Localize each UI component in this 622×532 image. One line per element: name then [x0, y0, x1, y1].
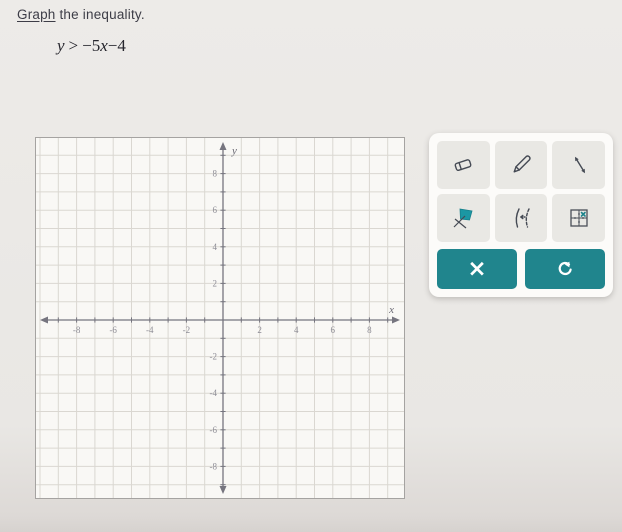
svg-text:4: 4: [213, 242, 218, 252]
eraser-icon: [451, 153, 475, 177]
graph-link[interactable]: Graph: [17, 7, 56, 22]
svg-text:4: 4: [294, 325, 299, 335]
pencil-icon: [509, 153, 533, 177]
line-segment-icon: [567, 153, 591, 177]
undo-icon: [553, 257, 577, 281]
svg-text:x: x: [388, 304, 394, 316]
svg-text:-2: -2: [210, 352, 218, 362]
svg-text:-2: -2: [183, 325, 191, 335]
dashed-boundary-icon: [509, 206, 533, 230]
equation-constant: −4: [108, 36, 126, 55]
svg-text:8: 8: [367, 325, 372, 335]
line-tool-button[interactable]: [552, 141, 605, 189]
graph-grid-svg[interactable]: -8-6-4-22468-8-6-4-22468xy: [36, 138, 404, 498]
tool-grid: [437, 141, 605, 242]
equation-lhs: y: [57, 36, 65, 55]
undo-button[interactable]: [525, 249, 605, 289]
equation-coefficient: −5: [82, 36, 100, 55]
svg-text:-4: -4: [210, 388, 218, 398]
action-buttons: ×: [437, 249, 605, 289]
half-plane-shade-icon: [451, 206, 475, 230]
prompt-text: Graph the inequality.: [17, 7, 145, 22]
svg-text:8: 8: [213, 169, 218, 179]
eraser-tool-button[interactable]: [437, 141, 490, 189]
clear-button[interactable]: ×: [437, 249, 517, 289]
svg-text:2: 2: [213, 278, 218, 288]
svg-text:-6: -6: [210, 425, 218, 435]
graph-canvas[interactable]: -8-6-4-22468-8-6-4-22468xy: [35, 137, 405, 499]
svg-text:2: 2: [257, 325, 262, 335]
dashed-boundary-tool-button[interactable]: [495, 194, 548, 242]
svg-text:-6: -6: [109, 325, 117, 335]
plot-points-grid-icon: [567, 206, 591, 230]
svg-text:6: 6: [213, 205, 218, 215]
half-plane-tool-button[interactable]: [437, 194, 490, 242]
svg-text:-4: -4: [146, 325, 154, 335]
svg-text:-8: -8: [73, 325, 81, 335]
plot-points-tool-button[interactable]: [552, 194, 605, 242]
svg-text:y: y: [231, 145, 237, 157]
prompt-rest: the inequality.: [56, 7, 145, 22]
svg-text:-8: -8: [210, 461, 218, 471]
inequality-equation: y>−5x−4: [57, 36, 126, 56]
pencil-tool-button[interactable]: [495, 141, 548, 189]
equation-operator: >: [65, 36, 83, 55]
equation-variable: x: [100, 36, 108, 55]
svg-text:6: 6: [331, 325, 336, 335]
close-icon: ×: [467, 258, 486, 281]
tool-palette: ×: [429, 133, 613, 297]
